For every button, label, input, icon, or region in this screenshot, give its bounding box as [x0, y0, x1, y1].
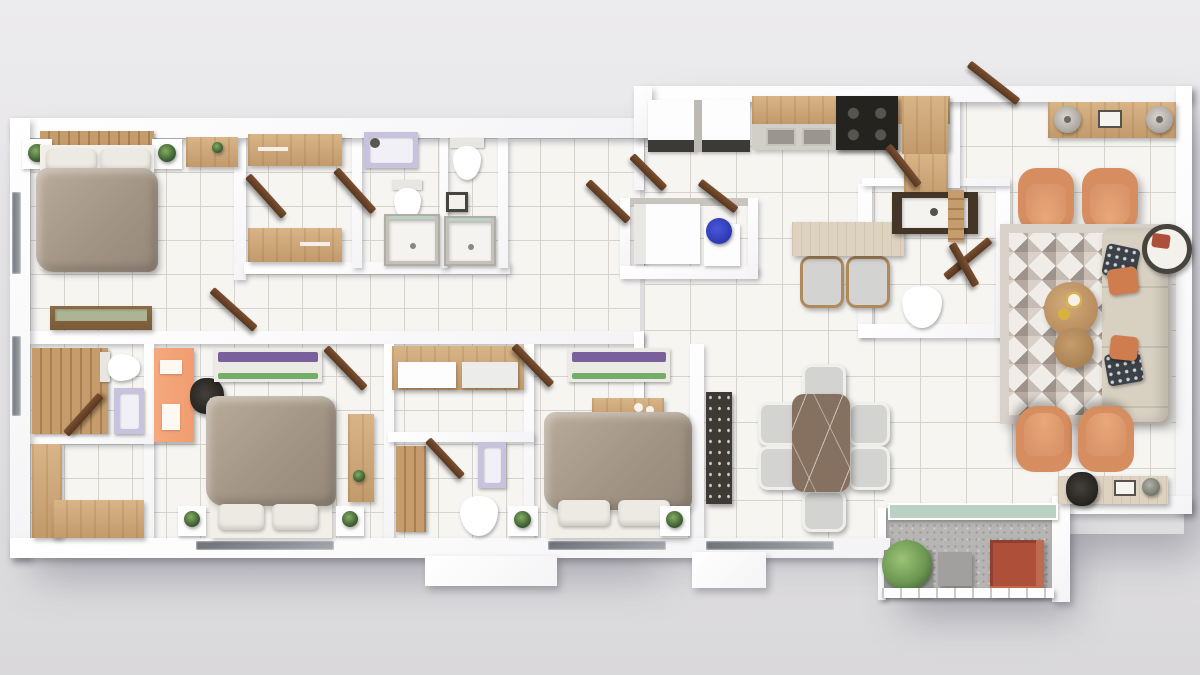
master-console: [186, 137, 238, 167]
bed3-bench: [568, 348, 670, 382]
kitchen-sink-2: [802, 128, 832, 146]
dryer-front: [700, 140, 750, 152]
washer-front: [648, 140, 698, 152]
floor-plan-render: [0, 0, 1200, 675]
headboard: [40, 131, 154, 145]
window-left-2: [12, 336, 21, 416]
bed2-pillow-right: [272, 504, 318, 530]
dining-table: [792, 394, 850, 492]
bed2-duvet: [206, 396, 336, 506]
desk-papers: [160, 360, 182, 374]
wall-bathD-top: [388, 432, 534, 442]
bar-table: [792, 222, 904, 256]
wall-bathC-bottom: [30, 434, 154, 444]
desk-plant: [1142, 478, 1160, 496]
wall-niche-bottom: [620, 266, 758, 279]
window-bottom-dining: [706, 541, 834, 550]
bathC-slat-wall: [32, 348, 108, 434]
window-bottom-bed3: [548, 541, 666, 550]
coffee-tray-1: [1066, 292, 1082, 308]
outer-wall-right: [1176, 86, 1192, 512]
armchair-bottom-right: [1078, 406, 1134, 472]
appliance-divider: [694, 100, 702, 152]
sinkB-basin: [449, 195, 465, 209]
bed3-plant-right: [666, 511, 683, 528]
terracotta-lounger: [990, 540, 1044, 594]
bar-chair-1: [800, 256, 844, 308]
wardrobe-top-handle: [258, 147, 288, 151]
bed2-bench: [214, 348, 322, 382]
powder-faucet: [930, 208, 938, 216]
wall-shelf: [948, 190, 964, 242]
wall-powder-bottom: [858, 324, 1010, 338]
master-bench-cushion: [55, 309, 147, 321]
desk-frame: [1114, 480, 1136, 496]
console-lamp-right: [1146, 106, 1173, 133]
storage-table: [52, 500, 144, 538]
niche-cabinet: [634, 204, 700, 264]
kitchen-sink-1: [766, 128, 796, 146]
window-bottom-bed2: [196, 541, 334, 550]
bed2-dresser-plant: [353, 470, 365, 482]
sofa-pillow-orange-2: [1109, 335, 1139, 362]
wire-side-table: [1142, 224, 1192, 274]
blue-basin: [706, 218, 732, 244]
cooktop: [836, 96, 898, 150]
plant-nightstand-right: [158, 144, 176, 162]
bed2-dresser: [348, 414, 374, 502]
coffee-tray-2: [1058, 308, 1070, 320]
wall-niche-right: [748, 198, 758, 274]
dining-chair-right-1: [848, 402, 890, 446]
bed3-plant-left: [514, 511, 531, 528]
bar-cabinet: [706, 392, 732, 504]
wall-bathB-right: [498, 138, 508, 268]
desk-papers-2: [162, 404, 180, 430]
balcony-bottom-railing: [882, 588, 1054, 598]
armchair-bottom-left: [1016, 406, 1072, 472]
dining-chair-right-2: [848, 446, 890, 490]
showerA: [384, 214, 440, 266]
bed2-plant-left: [184, 511, 200, 527]
bed2-plant-right: [342, 511, 358, 527]
bathC-vanity: [114, 388, 144, 434]
wardrobe-bottom-handle: [300, 242, 330, 246]
window-ledge-2: [692, 552, 766, 588]
window-ledge-1: [425, 556, 557, 586]
bed2-pillow-left: [218, 504, 264, 530]
washer-knob: [370, 138, 380, 148]
balcony-plant: [882, 540, 932, 590]
dining-chair-bottom: [802, 490, 846, 532]
window-left-1: [12, 192, 21, 274]
bed3-candle-1: [634, 403, 643, 412]
bed3-duvet: [544, 412, 692, 510]
sofa-pillow-orange-1: [1106, 266, 1139, 296]
console-lamp-left: [1054, 106, 1081, 133]
bed3-pillow-left: [558, 500, 610, 526]
closet-slider-left: [398, 362, 456, 388]
console-bowl: [212, 142, 223, 153]
kitchen-corner-counter: [902, 96, 948, 154]
showerB: [444, 216, 496, 266]
coffee-table-small: [1054, 328, 1094, 368]
sofa-throw: [1151, 233, 1171, 249]
console-artwork: [1098, 110, 1122, 128]
wall-bed3-right: [690, 344, 704, 538]
bathD-slat-wall: [396, 446, 426, 532]
balcony-glass-railing: [888, 503, 1058, 520]
closet-slider-right: [462, 362, 518, 388]
master-duvet: [36, 168, 158, 272]
bar-chair-2: [846, 256, 890, 308]
wall-hallway-bottom: [30, 331, 644, 344]
bathD-vanity: [478, 442, 506, 488]
balcony-table: [938, 552, 972, 586]
living-desk-chair: [1066, 472, 1098, 506]
